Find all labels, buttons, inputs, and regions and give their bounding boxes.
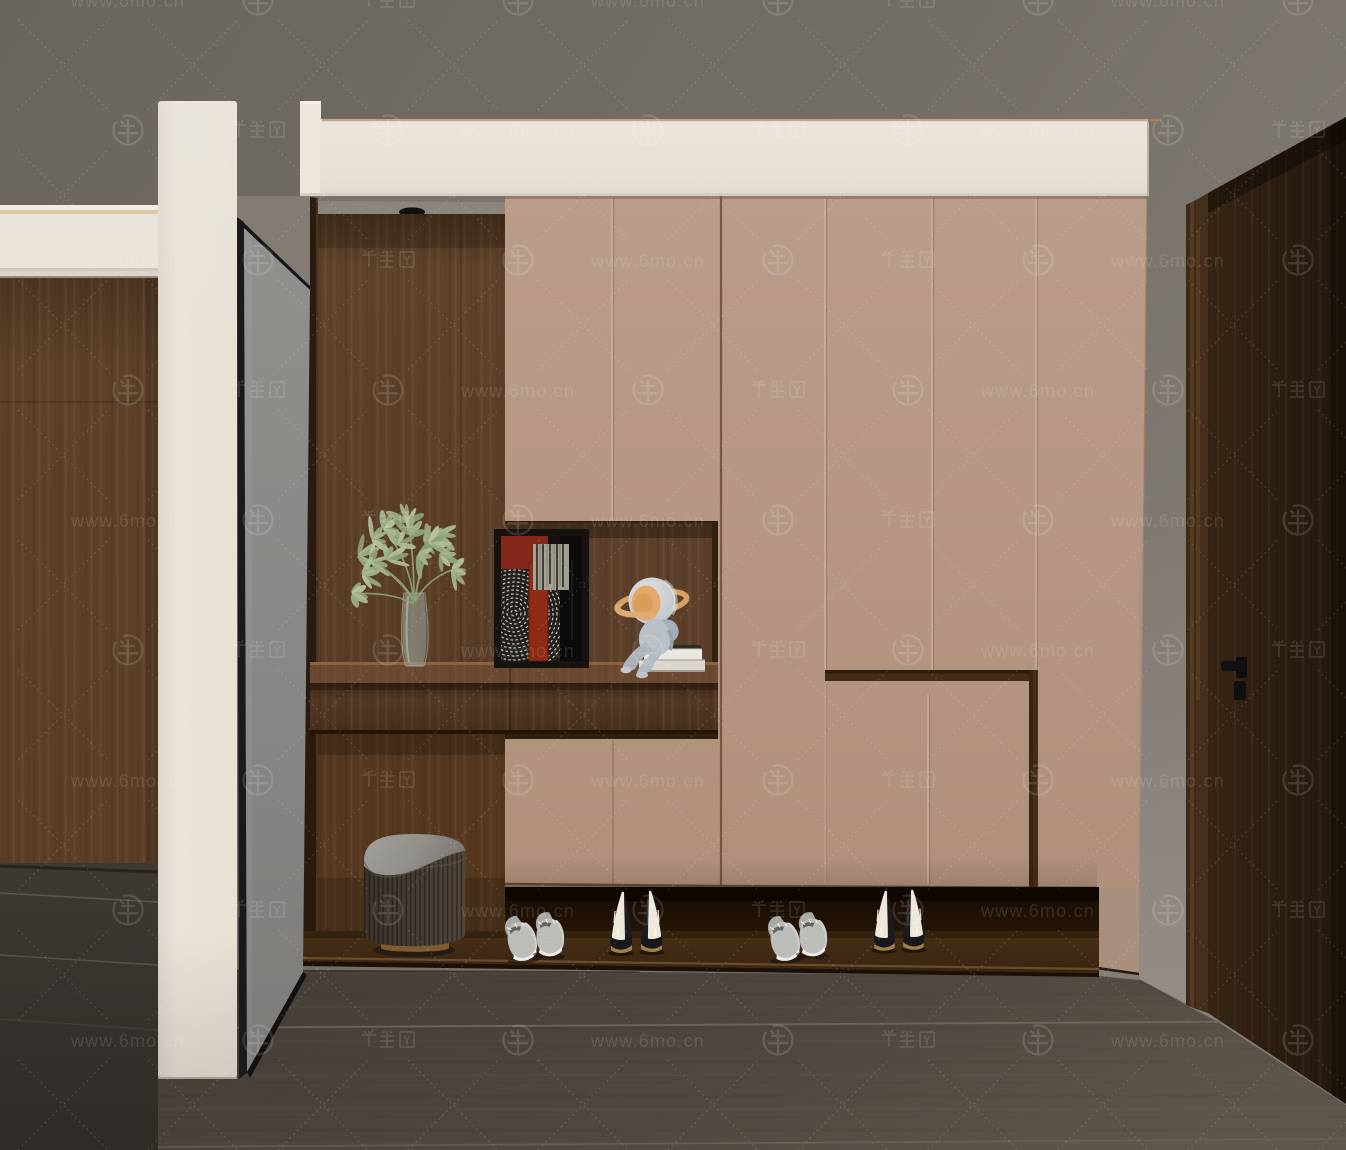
svg-text:www.6mo.cn: www.6mo.cn — [590, 0, 705, 11]
svg-text:www.6mo.cn: www.6mo.cn — [1110, 0, 1225, 11]
svg-text:www.6mo.cn: www.6mo.cn — [980, 641, 1095, 661]
svg-text:www.6mo.cn: www.6mo.cn — [590, 1031, 705, 1051]
svg-text:www.6mo.cn: www.6mo.cn — [70, 771, 185, 791]
svg-text:www.6mo.cn: www.6mo.cn — [590, 251, 705, 271]
svg-text:www.6mo.cn: www.6mo.cn — [70, 511, 185, 531]
svg-text:www.6mo.cn: www.6mo.cn — [980, 121, 1095, 141]
svg-text:www.6mo.cn: www.6mo.cn — [980, 901, 1095, 921]
svg-text:www.6mo.cn: www.6mo.cn — [460, 121, 575, 141]
svg-text:www.6mo.cn: www.6mo.cn — [1110, 251, 1225, 271]
svg-text:www.6mo.cn: www.6mo.cn — [1110, 771, 1225, 791]
svg-text:www.6mo.cn: www.6mo.cn — [590, 511, 705, 531]
svg-text:www.6mo.cn: www.6mo.cn — [70, 1031, 185, 1051]
svg-text:www.6mo.cn: www.6mo.cn — [460, 641, 575, 661]
svg-text:www.6mo.cn: www.6mo.cn — [1110, 1031, 1225, 1051]
svg-text:www.6mo.cn: www.6mo.cn — [980, 381, 1095, 401]
svg-text:www.6mo.cn: www.6mo.cn — [70, 0, 185, 11]
svg-text:www.6mo.cn: www.6mo.cn — [1110, 511, 1225, 531]
svg-text:www.6mo.cn: www.6mo.cn — [590, 771, 705, 791]
svg-text:www.6mo.cn: www.6mo.cn — [70, 251, 185, 271]
svg-text:www.6mo.cn: www.6mo.cn — [460, 901, 575, 921]
svg-text:www.6mo.cn: www.6mo.cn — [460, 381, 575, 401]
